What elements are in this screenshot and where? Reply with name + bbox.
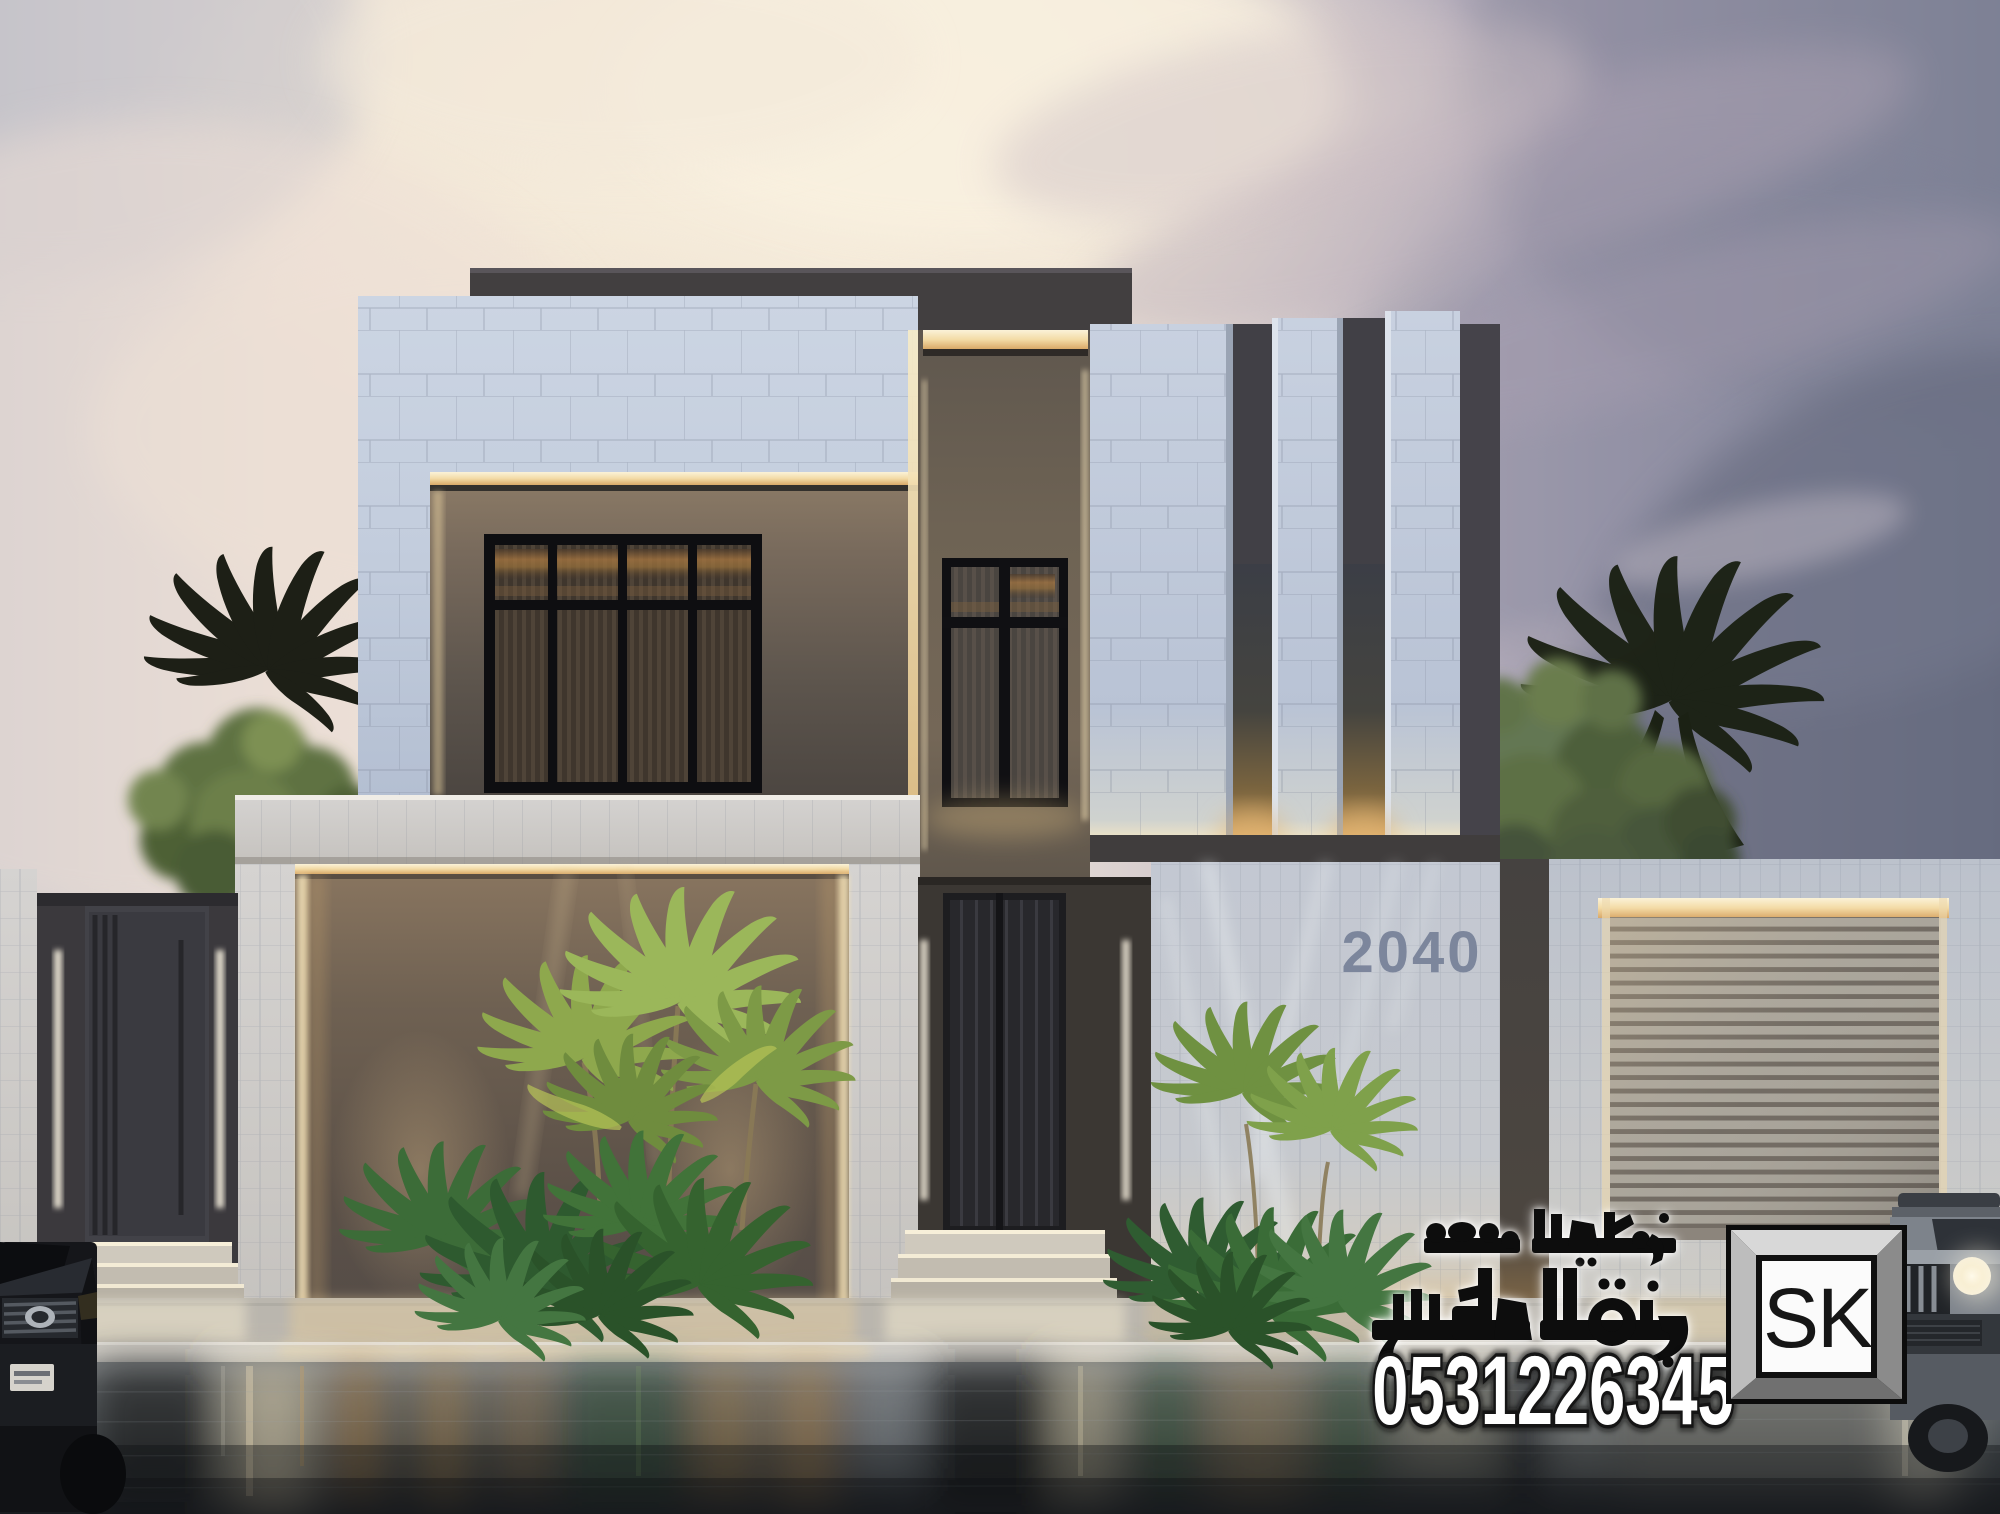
svg-text:2040: 2040 (1341, 920, 1482, 985)
svg-text:SK: SK (1763, 1271, 1873, 1365)
svg-text:0531226345: 0531226345 (1372, 1337, 1733, 1445)
